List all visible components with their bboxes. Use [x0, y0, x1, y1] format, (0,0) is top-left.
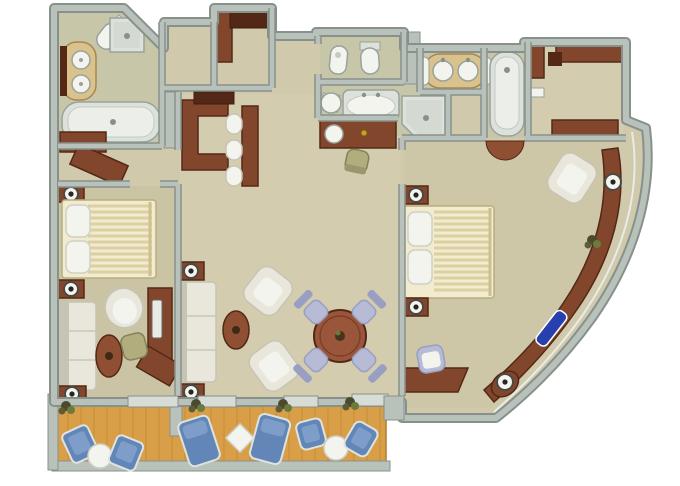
bed1-pillow-1 [66, 205, 90, 237]
walkin-wardrobe-bottom [552, 120, 618, 136]
nook-faucet-2 [466, 58, 470, 62]
walkin-wardrobe-left [530, 46, 544, 78]
balcony-table-right [324, 436, 348, 460]
living-lamp-top [184, 264, 198, 278]
closetB-wardrobe-top [230, 12, 270, 28]
wc-bidet [329, 45, 349, 75]
wet-bar-shelf [194, 92, 234, 104]
wc-bidet-drain [335, 52, 341, 58]
bed1-lamp-bottom [64, 282, 78, 296]
bed2-pillow-1 [408, 212, 432, 246]
bed1-sofa-back [60, 302, 69, 390]
bed1-balcony-door-sill [128, 396, 178, 407]
nook-faucet-1 [441, 58, 445, 62]
bed1-lamp-top [64, 187, 78, 201]
bath2-shower-drain [423, 115, 429, 121]
bath2-vanity-knob [361, 130, 367, 136]
master-sink-2-drain [79, 82, 83, 86]
master-shower-drain [124, 33, 130, 39]
nook-sink-1 [433, 61, 453, 81]
bed1-pillow-2 [66, 241, 90, 273]
bath2-tub-faucet-2 [376, 93, 380, 97]
bed2-cabinet-lamp-bottom [497, 374, 513, 390]
floor-plan [0, 0, 680, 486]
bed2-pillow-2 [408, 250, 432, 284]
master-vanity-frame [60, 46, 67, 96]
wet-bar-stool-panel [242, 106, 258, 186]
nook-sink-2 [458, 61, 478, 81]
wc-toilet-bowl [360, 47, 380, 74]
bar-stool-1 [226, 114, 242, 134]
bath2-pedestal-sink [321, 93, 341, 113]
bath2-vanity-sink [325, 125, 343, 143]
living-lamp-bottom [184, 385, 198, 399]
dining-centerpiece-leaf [336, 331, 341, 336]
bath2-long-tub-drain [504, 67, 510, 73]
walkin-wardrobe-top-step [548, 52, 562, 66]
master-bathtub-drain [110, 119, 116, 125]
bar-stool-3 [226, 166, 242, 186]
balcony-corner-step [384, 396, 404, 420]
floor-plan-svg [0, 0, 680, 486]
living-coffee-table-decor [232, 326, 240, 334]
bed1-tv [152, 300, 162, 338]
bed2-desk-chair-seat [421, 351, 442, 370]
bath2-tub-basin [347, 95, 395, 117]
bed2-cabinet-lamp-top [605, 174, 621, 190]
master-sink-1-drain [79, 58, 83, 62]
bath2-tub-faucet-1 [362, 93, 366, 97]
bar-stool-2 [226, 140, 242, 160]
bed2-lamp-bottom [409, 300, 423, 314]
bed1-coffee-table-decor [105, 352, 113, 360]
bed2-lamp-top [409, 188, 423, 202]
balcony-table-left [88, 444, 112, 468]
